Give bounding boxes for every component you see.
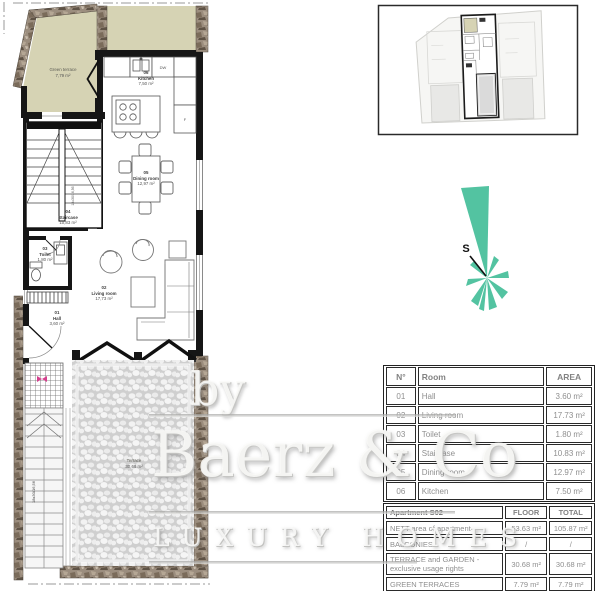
table-row: 06Kitchen7.50 m² xyxy=(386,482,592,500)
table-cell: 01 xyxy=(386,387,416,405)
table-cell: Dining room xyxy=(418,463,544,481)
table-row: BALCONIES// xyxy=(386,537,592,551)
table-cell: Toilet xyxy=(418,425,544,443)
stove xyxy=(116,100,140,124)
column-header-total: TOTAL xyxy=(549,506,592,519)
room-label-living-room: 02Living room17,73 m² xyxy=(91,285,116,302)
table-header-row: Apartment S02 FLOOR TOTAL xyxy=(386,506,592,519)
table-cell: 05 xyxy=(386,463,416,481)
room-label-dining-room: 05Dining room12,97 m² xyxy=(133,170,159,187)
table-cell: 10.83 m² xyxy=(546,444,592,462)
entrance-door xyxy=(29,326,61,358)
table-cell: 17.73 m² xyxy=(546,406,592,424)
table-cell: 7.79 m² xyxy=(505,577,548,591)
neighbor-green-strip xyxy=(107,6,196,50)
room-label-toilet: 03Toilet1,80 m² xyxy=(38,246,53,263)
column-header-area: AREA xyxy=(546,367,592,386)
site-overview-map xyxy=(379,6,578,135)
table-cell: / xyxy=(549,537,592,551)
table-cell: 02 xyxy=(386,406,416,424)
room-label-hall: 01Hall3,60 m² xyxy=(50,310,65,327)
side-table xyxy=(169,241,186,258)
table-cell: NETT area of apartment xyxy=(386,521,503,535)
column-header-room: Room xyxy=(418,367,544,386)
coffee-table xyxy=(131,277,155,307)
table-cell: 12.97 m² xyxy=(546,463,592,481)
table-row: TERRACE and GARDEN - exclusive usage rig… xyxy=(386,553,592,575)
highlighted-unit xyxy=(461,14,499,118)
table-row: GREEN TERRACES7.79 m²7.79 m² xyxy=(386,577,592,591)
table-cell: 105.87 m² xyxy=(549,521,592,535)
table-cell: 06 xyxy=(386,482,416,500)
table-row: 02Living room17.73 m² xyxy=(386,406,592,424)
table-cell: Kitchen xyxy=(418,482,544,500)
room-label-green-terrace: Green terrace7,79 m² xyxy=(49,67,76,78)
table-row: 03Toilet1.80 m² xyxy=(386,425,592,443)
bar-stools xyxy=(114,132,158,138)
table-cell: Hall xyxy=(418,387,544,405)
radiator xyxy=(27,292,68,303)
summary-title: Apartment S02 xyxy=(386,506,503,519)
table-cell: 7.50 m² xyxy=(546,482,592,500)
dishwasher-label: DW xyxy=(160,65,167,70)
table-cell: 30.68 m² xyxy=(549,553,592,575)
room-label-kitchen: 06Kitchen7,50 m² xyxy=(138,70,154,87)
apartment-summary-table: Apartment S02 FLOOR TOTAL NETT area of a… xyxy=(383,503,595,591)
armchair xyxy=(133,240,154,261)
table-cell: GREEN TERRACES xyxy=(386,577,503,591)
table-cell: 03 xyxy=(386,425,416,443)
table-cell: 7.79 m² xyxy=(549,577,592,591)
entrance-trellis xyxy=(25,363,63,408)
table-cell: 1.80 m² xyxy=(546,425,592,443)
floorplan-page: 18x30/16,56 DW F xyxy=(0,0,600,591)
column-header-number: N° xyxy=(386,367,416,386)
table-row: 04Staircase10.83 m² xyxy=(386,444,592,462)
room-label-terrace: Terrace30,68 m² xyxy=(125,458,142,469)
exterior-stair-dimension-text: 18x30/16,56 xyxy=(31,480,36,503)
table-row: 01Hall3.60 m² xyxy=(386,387,592,405)
table-header-row: N° Room AREA xyxy=(386,367,592,386)
table-cell: 3.60 m² xyxy=(546,387,592,405)
table-cell: / xyxy=(505,537,548,551)
summary-table-body: NETT area of apartment53.63 m²105.87 m²B… xyxy=(386,521,592,591)
table-cell: 04 xyxy=(386,444,416,462)
exterior-stairs: 18x30/16,56 xyxy=(25,408,70,568)
south-label: S xyxy=(462,243,469,255)
table-cell: TERRACE and GARDEN - exclusive usage rig… xyxy=(386,553,503,575)
room-label-staircase: 04Staircase10,83 m² xyxy=(58,209,78,226)
table-cell: Staircase xyxy=(418,444,544,462)
compass-rose: S xyxy=(461,186,509,311)
table-cell: 30.68 m² xyxy=(505,553,548,575)
table-row: NETT area of apartment53.63 m²105.87 m² xyxy=(386,521,592,535)
wc-bowl xyxy=(32,269,41,281)
room-table-body: 01Hall3.60 m²02Living room17.73 m²03Toil… xyxy=(386,387,592,500)
table-cell: Living room xyxy=(418,406,544,424)
table-cell: BALCONIES xyxy=(386,537,503,551)
column-header-floor: FLOOR xyxy=(505,506,548,519)
table-row: 05Dining room12.97 m² xyxy=(386,463,592,481)
room-area-table: N° Room AREA 01Hall3.60 m²02Living room1… xyxy=(383,365,595,502)
table-cell: 53.63 m² xyxy=(505,521,548,535)
stair-dimension-text: 18x30/16,56 xyxy=(71,186,75,205)
